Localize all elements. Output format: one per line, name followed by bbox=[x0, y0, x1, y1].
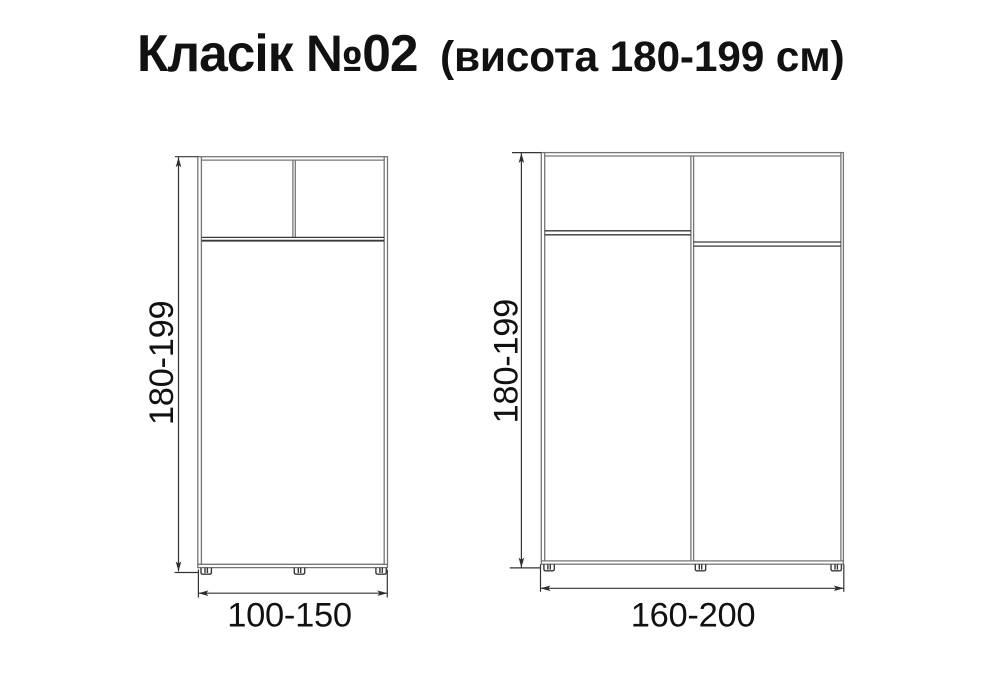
svg-text:180-199: 180-199 bbox=[488, 299, 526, 424]
svg-text:180-199: 180-199 bbox=[143, 301, 181, 426]
svg-text:Класік №02: Класік №02 bbox=[137, 24, 418, 82]
svg-text:100-150: 100-150 bbox=[227, 597, 352, 635]
svg-text:(висота 180-199 см): (висота 180-199 см) bbox=[440, 34, 844, 81]
svg-text:160-200: 160-200 bbox=[631, 597, 756, 635]
